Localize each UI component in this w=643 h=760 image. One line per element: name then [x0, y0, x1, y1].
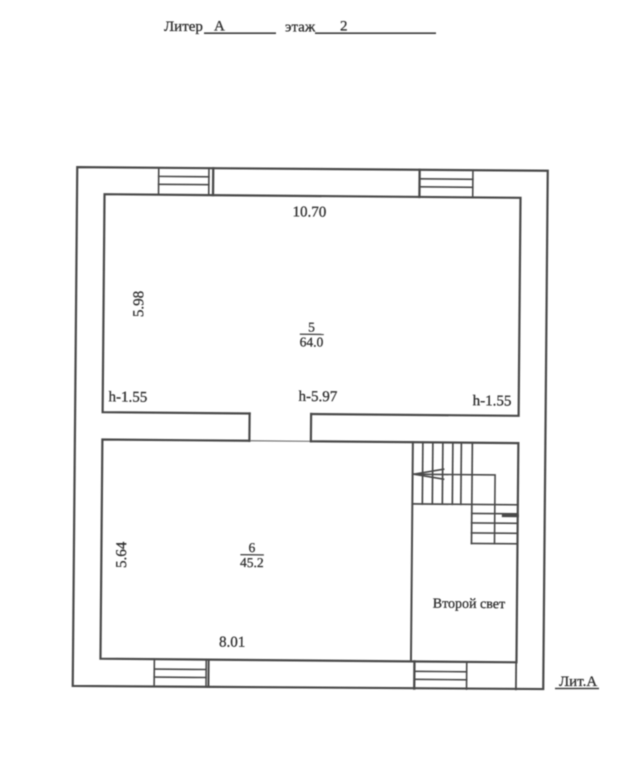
- svg-text:Лит.А: Лит.А: [559, 674, 597, 690]
- svg-text:2: 2: [340, 19, 348, 35]
- svg-text:5: 5: [308, 319, 315, 334]
- svg-text:этаж: этаж: [285, 19, 316, 35]
- svg-text:h-1.55: h-1.55: [109, 389, 148, 405]
- svg-text:6: 6: [249, 540, 256, 555]
- svg-text:А: А: [214, 19, 225, 35]
- svg-text:5.64: 5.64: [114, 541, 130, 568]
- svg-text:64.0: 64.0: [300, 334, 324, 349]
- svg-text:Литер: Литер: [164, 19, 203, 35]
- svg-text:h-1.55: h-1.55: [473, 393, 512, 409]
- svg-text:5.98: 5.98: [131, 291, 147, 317]
- svg-text:Второй свет: Второй свет: [433, 597, 505, 613]
- svg-text:8.01: 8.01: [219, 635, 245, 651]
- svg-text:h-5.97: h-5.97: [299, 389, 338, 405]
- svg-text:45.2: 45.2: [240, 555, 264, 570]
- svg-text:10.70: 10.70: [292, 204, 326, 220]
